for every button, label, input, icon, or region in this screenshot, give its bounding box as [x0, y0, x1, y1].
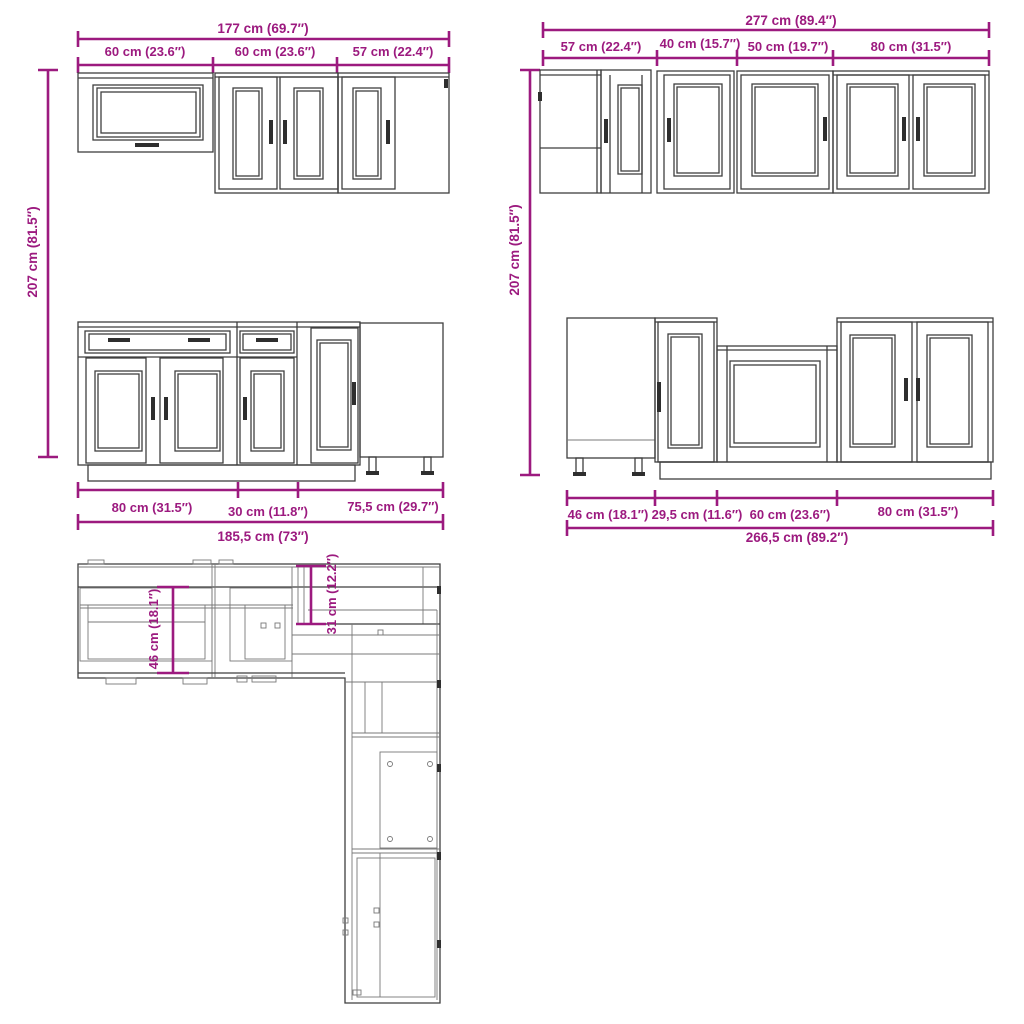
handle — [283, 120, 287, 144]
hinge-mark — [275, 623, 280, 628]
drawing-line — [219, 77, 277, 189]
drawing-line — [924, 84, 975, 176]
handle — [188, 338, 210, 342]
drawing-line — [356, 91, 378, 176]
hinge-mark — [261, 623, 266, 628]
drawing-line — [717, 346, 837, 462]
drawing-line — [297, 91, 320, 176]
drawing-line — [95, 371, 142, 451]
dimension-line-segments — [78, 57, 449, 73]
leg-foot — [421, 471, 434, 475]
handle — [164, 397, 168, 420]
drawing-line — [927, 335, 972, 447]
handle — [151, 397, 155, 420]
handle — [243, 397, 247, 420]
foot-tab — [237, 676, 247, 682]
leg — [635, 458, 642, 473]
width-dimensions-base-right: 46 cm (18.1″) 29,5 cm (11.6″) 60 cm (23.… — [567, 490, 993, 545]
height-dimension-right: 207 cm (81.5″) — [507, 70, 540, 475]
dim-label-base-right-seg-2: 29,5 cm (11.6″) — [652, 507, 743, 522]
leg — [369, 457, 376, 472]
drawing-line — [917, 322, 988, 462]
drawing-line — [671, 337, 699, 445]
dim-label-wall-right-seg-4: 80 cm (31.5″) — [871, 39, 952, 54]
drawing-line — [175, 371, 220, 451]
drawing-line — [540, 70, 601, 193]
corner-base-box — [360, 323, 443, 475]
dim-label-base-right-total: 266,5 cm (89.2″) — [746, 530, 849, 545]
drawing-line — [360, 323, 443, 457]
handle — [256, 338, 278, 342]
shelf-peg — [388, 837, 393, 842]
dim-label-base-left-total: 185,5 cm (73″) — [217, 529, 308, 544]
hinge-mark — [378, 630, 383, 635]
dimension-line-height — [38, 70, 58, 457]
corner-wall-cabinet — [338, 73, 449, 193]
plan-outer-boundary — [78, 564, 440, 1003]
handle — [823, 117, 827, 141]
hinge-nub — [437, 764, 441, 772]
hinge-nub — [437, 586, 441, 594]
drawing-line — [97, 88, 200, 137]
drawing-line — [730, 361, 820, 447]
hinge-nub — [437, 680, 441, 688]
dim-label-wall-right-total: 277 cm (89.4″) — [745, 13, 836, 28]
drawer-80 — [85, 331, 230, 353]
handle — [916, 117, 920, 141]
handle — [904, 378, 908, 401]
narrow-door-wall-cabinet — [601, 70, 651, 193]
leg-foot — [573, 472, 586, 476]
drawing-line — [850, 87, 895, 173]
narrow-door-base-cabinet — [655, 318, 717, 462]
foot-tab — [106, 678, 136, 684]
width-dimensions-base-left: 80 cm (31.5″) 30 cm (11.8″) 75,5 cm (29.… — [78, 482, 443, 544]
double-doors-80 — [86, 358, 223, 463]
glass-flip-wall-cabinet — [78, 73, 213, 152]
base-cabinets-right-elevation: 46 cm (18.1″) 29,5 cm (11.6″) 60 cm (23.… — [567, 318, 993, 545]
drawing-line — [850, 335, 895, 447]
shelf-peg — [428, 837, 433, 842]
handle — [108, 338, 130, 342]
dim-label-base-right-seg-3: 60 cm (23.6″) — [750, 507, 831, 522]
handle — [135, 143, 159, 147]
drawing-line — [236, 91, 259, 176]
drawing-line — [853, 338, 892, 444]
corner-wall-cabinet-right — [538, 70, 601, 193]
hinge-mark — [444, 79, 448, 88]
hinge-nub — [437, 940, 441, 948]
drawing-line — [178, 374, 217, 448]
dim-label-wall-right-seg-3: 50 cm (19.7″) — [748, 39, 829, 54]
drawing-line — [930, 338, 969, 444]
handle — [902, 117, 906, 141]
plinth — [88, 465, 355, 481]
appliance-base-cabinet-60 — [717, 346, 837, 462]
shelf-peg — [388, 762, 393, 767]
dim-label-wall-left-seg-2: 60 cm (23.6″) — [235, 44, 316, 59]
drawing-line — [734, 365, 816, 443]
dim-label-base-left-seg-2: 30 cm (11.8″) — [228, 504, 308, 519]
dimension-line-base-depth — [157, 587, 189, 673]
leg — [424, 457, 431, 472]
dim-label-plan-wall-depth: 31 cm (12.2″) — [324, 554, 339, 635]
drawing-line — [755, 87, 815, 173]
tall-door-section — [311, 328, 358, 463]
drawer-door-30 — [240, 331, 294, 463]
drawing-line — [245, 605, 285, 659]
drawing-line — [254, 374, 281, 448]
base-cabinets-left-elevation: 80 cm (31.5″) 30 cm (11.8″) 75,5 cm (29.… — [78, 322, 443, 544]
handle — [269, 120, 273, 144]
drawing-line — [78, 322, 360, 465]
handle — [352, 382, 356, 405]
drawing-line — [353, 88, 381, 179]
drawing-line — [841, 322, 912, 462]
leg-foot — [632, 472, 645, 476]
hinge-nub — [437, 852, 441, 860]
handle — [916, 378, 920, 401]
dim-label-base-right-seg-1: 46 cm (18.1″) — [568, 507, 649, 522]
double-door-base-cabinet-80 — [837, 318, 993, 462]
drawing-line — [338, 73, 449, 193]
carcass — [78, 322, 360, 465]
drawing-line — [927, 87, 972, 173]
dim-label-base-left-seg-3: 75,5 cm (29.7″) — [347, 499, 439, 514]
foot-tab — [252, 676, 276, 682]
drawing-line — [233, 88, 262, 179]
dim-label-wall-right-seg-2: 40 cm (15.7″) — [660, 36, 741, 51]
dimension-line-wall-depth — [296, 566, 326, 624]
drawing-line — [674, 84, 722, 176]
plinth — [660, 462, 991, 479]
dimension-line-height — [520, 70, 540, 475]
width-dimensions-wall-left: 177 cm (69.7″) 60 cm (23.6″) 60 cm (23.6… — [78, 21, 449, 73]
drawing-line — [317, 340, 351, 450]
l-shape-plan-view: 46 cm (18.1″) 31 cm (12.2″) — [78, 554, 441, 1003]
foot-tab — [183, 678, 207, 684]
handle — [604, 119, 608, 143]
drawing-line — [93, 85, 203, 140]
drawing-line — [833, 71, 989, 193]
dim-label-height-right: 207 cm (81.5″) — [507, 204, 522, 295]
dim-label-plan-base-depth: 46 cm (18.1″) — [146, 589, 161, 670]
drawing-line — [658, 322, 714, 462]
drawing-line — [280, 77, 338, 189]
corner-base-box — [567, 318, 655, 476]
kitchen-cabinet-dimension-diagram: 177 cm (69.7″) 60 cm (23.6″) 60 cm (23.6… — [0, 0, 1024, 1024]
drawing-line — [320, 343, 348, 447]
shelf-peg — [428, 762, 433, 767]
width-dimensions-wall-right: 277 cm (89.4″) 57 cm (22.4″) 40 cm (15.7… — [543, 13, 989, 66]
dim-label-wall-left-seg-1: 60 cm (23.6″) — [105, 44, 186, 59]
dim-label-base-right-seg-4: 80 cm (31.5″) — [878, 504, 959, 519]
drawing-line — [621, 88, 639, 171]
drawing-line — [101, 92, 196, 133]
door-wall-cabinet-40 — [657, 71, 734, 193]
depth-dimensions-plan: 46 cm (18.1″) 31 cm (12.2″) — [146, 554, 339, 673]
drawing-line — [567, 318, 655, 458]
handle — [667, 118, 671, 142]
door-wall-cabinet-50 — [737, 71, 833, 193]
drawing-line — [668, 334, 702, 448]
dim-label-wall-left-total: 177 cm (69.7″) — [217, 21, 308, 36]
dim-label-wall-right-seg-1: 57 cm (22.4″) — [561, 39, 642, 54]
leg-foot — [366, 471, 379, 475]
height-dimension-left: 207 cm (81.5″) — [25, 70, 58, 457]
drawing-line — [677, 87, 719, 173]
drawing-line — [847, 84, 898, 176]
dim-label-height-left: 207 cm (81.5″) — [25, 206, 40, 297]
double-door-wall-cabinet — [215, 73, 338, 193]
drawing-line — [251, 371, 284, 451]
drawing-line — [741, 75, 829, 189]
plan-tall-unit-bottom — [357, 858, 435, 997]
hinge-mark — [538, 92, 542, 101]
dim-label-base-left-seg-1: 80 cm (31.5″) — [112, 500, 193, 515]
handle — [657, 382, 661, 412]
handle — [386, 120, 390, 144]
drawing-line — [752, 84, 818, 176]
drawing-line — [655, 318, 717, 462]
hinge-mark — [374, 908, 379, 913]
dim-label-wall-left-seg-3: 57 cm (22.4″) — [353, 44, 434, 59]
hinge-mark — [374, 922, 379, 927]
drawing-line — [98, 374, 139, 448]
dimension-line-segments — [78, 482, 443, 498]
drawing-line — [294, 88, 323, 179]
leg — [576, 458, 583, 473]
double-door-wall-cabinet-80 — [833, 71, 989, 193]
